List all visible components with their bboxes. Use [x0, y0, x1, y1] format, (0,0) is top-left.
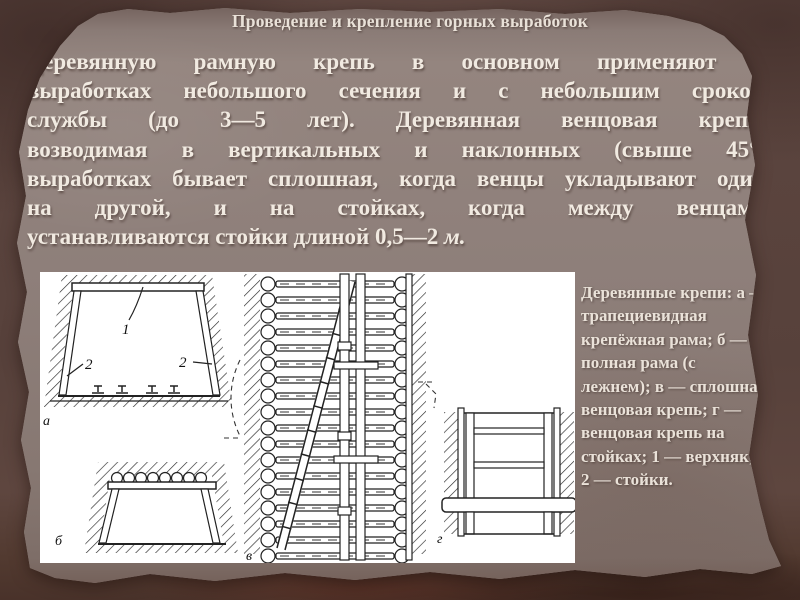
body-line: выработках бывает сплошная, когда венцы …: [27, 164, 766, 193]
callout-1-top-beam: 1: [122, 322, 130, 338]
body-paragraph: Деревянную рамную крепь в основном приме…: [27, 47, 766, 251]
slide-title: Проведение и крепление горных выработок: [60, 11, 760, 32]
timber-supports-drawing: 1 2 2 а: [40, 272, 575, 563]
callout-2-right-post: 2: [179, 355, 187, 371]
body-line: возводимая в вертикальных и наклонных (с…: [27, 135, 766, 164]
body-line: выработках небольшого сечения и с неболь…: [27, 76, 766, 105]
body-line: устанавливаются стойки длиной 0,5—2 м.: [27, 222, 766, 251]
figure-panel: 1 2 2 а: [40, 272, 575, 563]
body-line: Деревянную рамную крепь в основном приме…: [27, 47, 766, 76]
body-text: устанавливаются стойки длиной 0,5—2: [27, 224, 444, 249]
figure-label-g: г: [437, 532, 443, 547]
figure-g-crib-on-stands: г: [426, 384, 575, 547]
figure-label-a: а: [43, 414, 50, 429]
torn-paper-wrapper: Проведение и крепление горных выработок …: [0, 0, 800, 600]
body-unit-italic: м.: [444, 224, 466, 249]
callout-2-left-post: 2: [85, 357, 93, 373]
figure-caption: Деревянные крепи: а — трапециевидная кре…: [581, 281, 767, 492]
figure-a-trapezoid-frame: 1 2 2 а: [43, 275, 232, 429]
torn-paper-panel: Проведение и крепление горных выработок …: [0, 0, 800, 600]
body-line: службы (до 3—5 лет). Деревянная венцовая…: [27, 105, 766, 134]
figure-label-b: б: [55, 534, 63, 549]
figure-b-full-frame: б: [55, 462, 238, 553]
presentation-slide: Проведение и крепление горных выработок …: [0, 0, 800, 600]
figure-label-v: в: [246, 549, 252, 563]
body-line: на другой, и на стойках, когда между вен…: [27, 193, 766, 222]
figure-v-solid-crib-support: в: [224, 274, 434, 563]
